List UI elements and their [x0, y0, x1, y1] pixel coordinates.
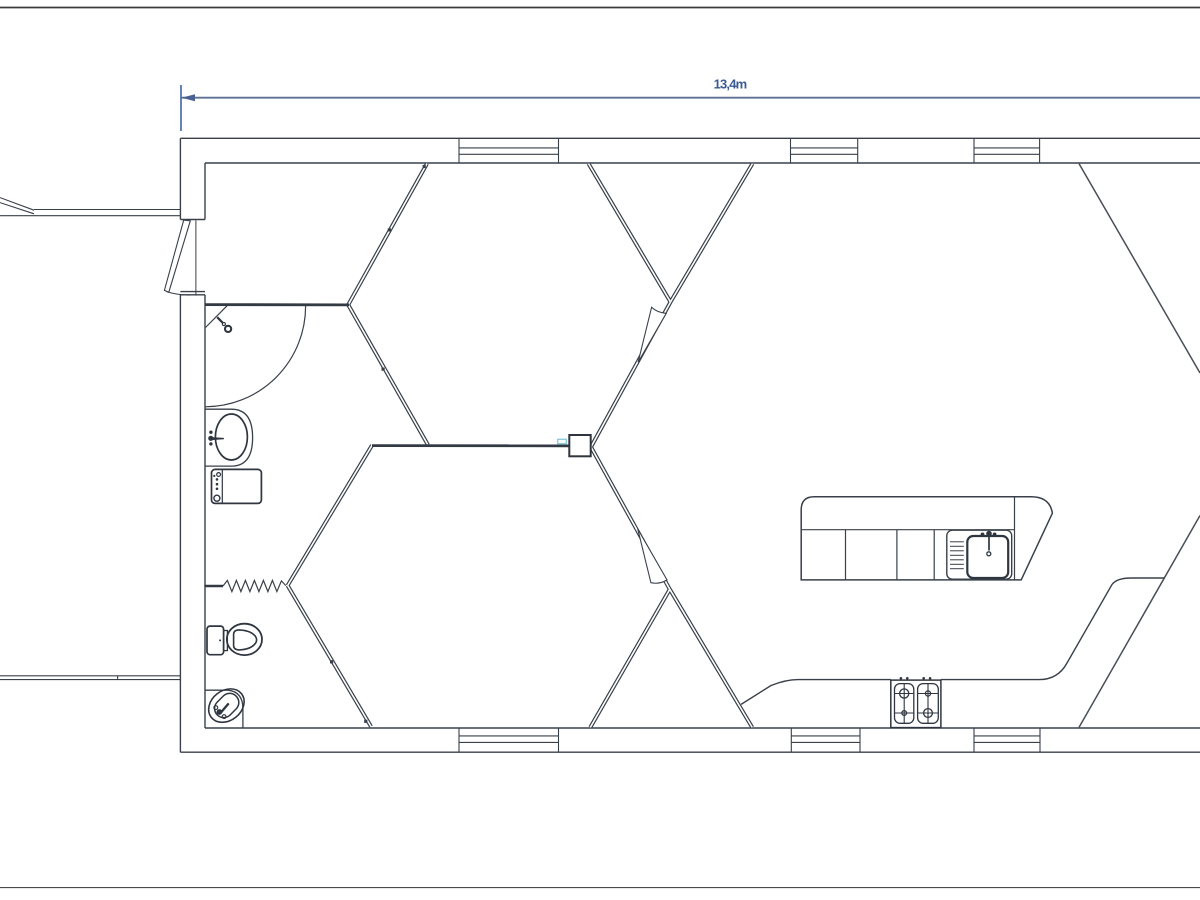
svg-text:13,4m: 13,4m	[714, 76, 747, 91]
